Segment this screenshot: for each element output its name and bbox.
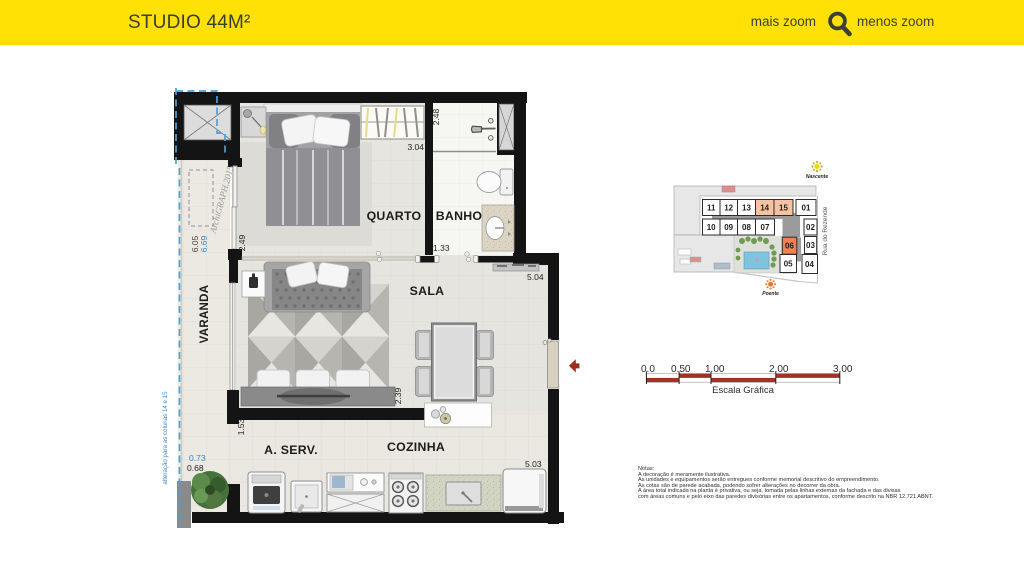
svg-text:alteração para as colunas 14 e: alteração para as colunas 14 e 15 [162, 391, 169, 485]
svg-text:11: 11 [707, 204, 716, 213]
svg-text:06: 06 [785, 242, 794, 251]
svg-text:09: 09 [724, 223, 733, 232]
svg-text:Escala Gráfica: Escala Gráfica [712, 385, 774, 396]
svg-text:05: 05 [784, 260, 793, 269]
svg-text:2.00: 2.00 [769, 364, 789, 375]
svg-text:QUARTO: QUARTO [367, 209, 422, 223]
svg-text:A. SERV.: A. SERV. [264, 443, 318, 457]
svg-text:01: 01 [802, 204, 811, 213]
svg-text:2.49: 2.49 [237, 234, 247, 251]
svg-text:Rua do Rezende: Rua do Rezende [822, 206, 829, 255]
svg-text:1.53: 1.53 [236, 418, 246, 435]
svg-text:1.33: 1.33 [433, 243, 450, 253]
svg-text:BANHO: BANHO [436, 209, 483, 223]
svg-text:Nascente: Nascente [806, 174, 828, 180]
svg-text:15: 15 [779, 204, 788, 213]
svg-text:04: 04 [805, 260, 814, 269]
svg-text:03: 03 [806, 241, 815, 250]
svg-text:14: 14 [760, 204, 769, 213]
svg-text:3.00: 3.00 [833, 364, 853, 375]
svg-text:02: 02 [806, 223, 815, 232]
svg-text:SALA: SALA [410, 284, 445, 298]
svg-text:5.04: 5.04 [527, 272, 544, 282]
svg-text:0.0: 0.0 [641, 364, 655, 375]
svg-text:5.03: 5.03 [525, 459, 542, 469]
svg-text:2.48: 2.48 [431, 108, 441, 125]
svg-text:08: 08 [742, 223, 751, 232]
svg-text:1.00: 1.00 [705, 364, 725, 375]
svg-text:3.04: 3.04 [407, 142, 424, 152]
svg-text:10: 10 [707, 223, 716, 232]
svg-text:6.69: 6.69 [199, 235, 209, 252]
svg-text:2.39: 2.39 [393, 387, 403, 404]
svg-text:12: 12 [724, 204, 733, 213]
svg-text:COZINHA: COZINHA [387, 440, 445, 454]
svg-text:VARANDA: VARANDA [199, 285, 211, 344]
svg-text:Poente: Poente [762, 291, 779, 297]
svg-text:0.50: 0.50 [671, 364, 691, 375]
svg-text:07: 07 [761, 223, 770, 232]
svg-text:13: 13 [742, 204, 751, 213]
svg-text:0.73: 0.73 [189, 453, 206, 463]
svg-text:0.68: 0.68 [187, 463, 204, 473]
